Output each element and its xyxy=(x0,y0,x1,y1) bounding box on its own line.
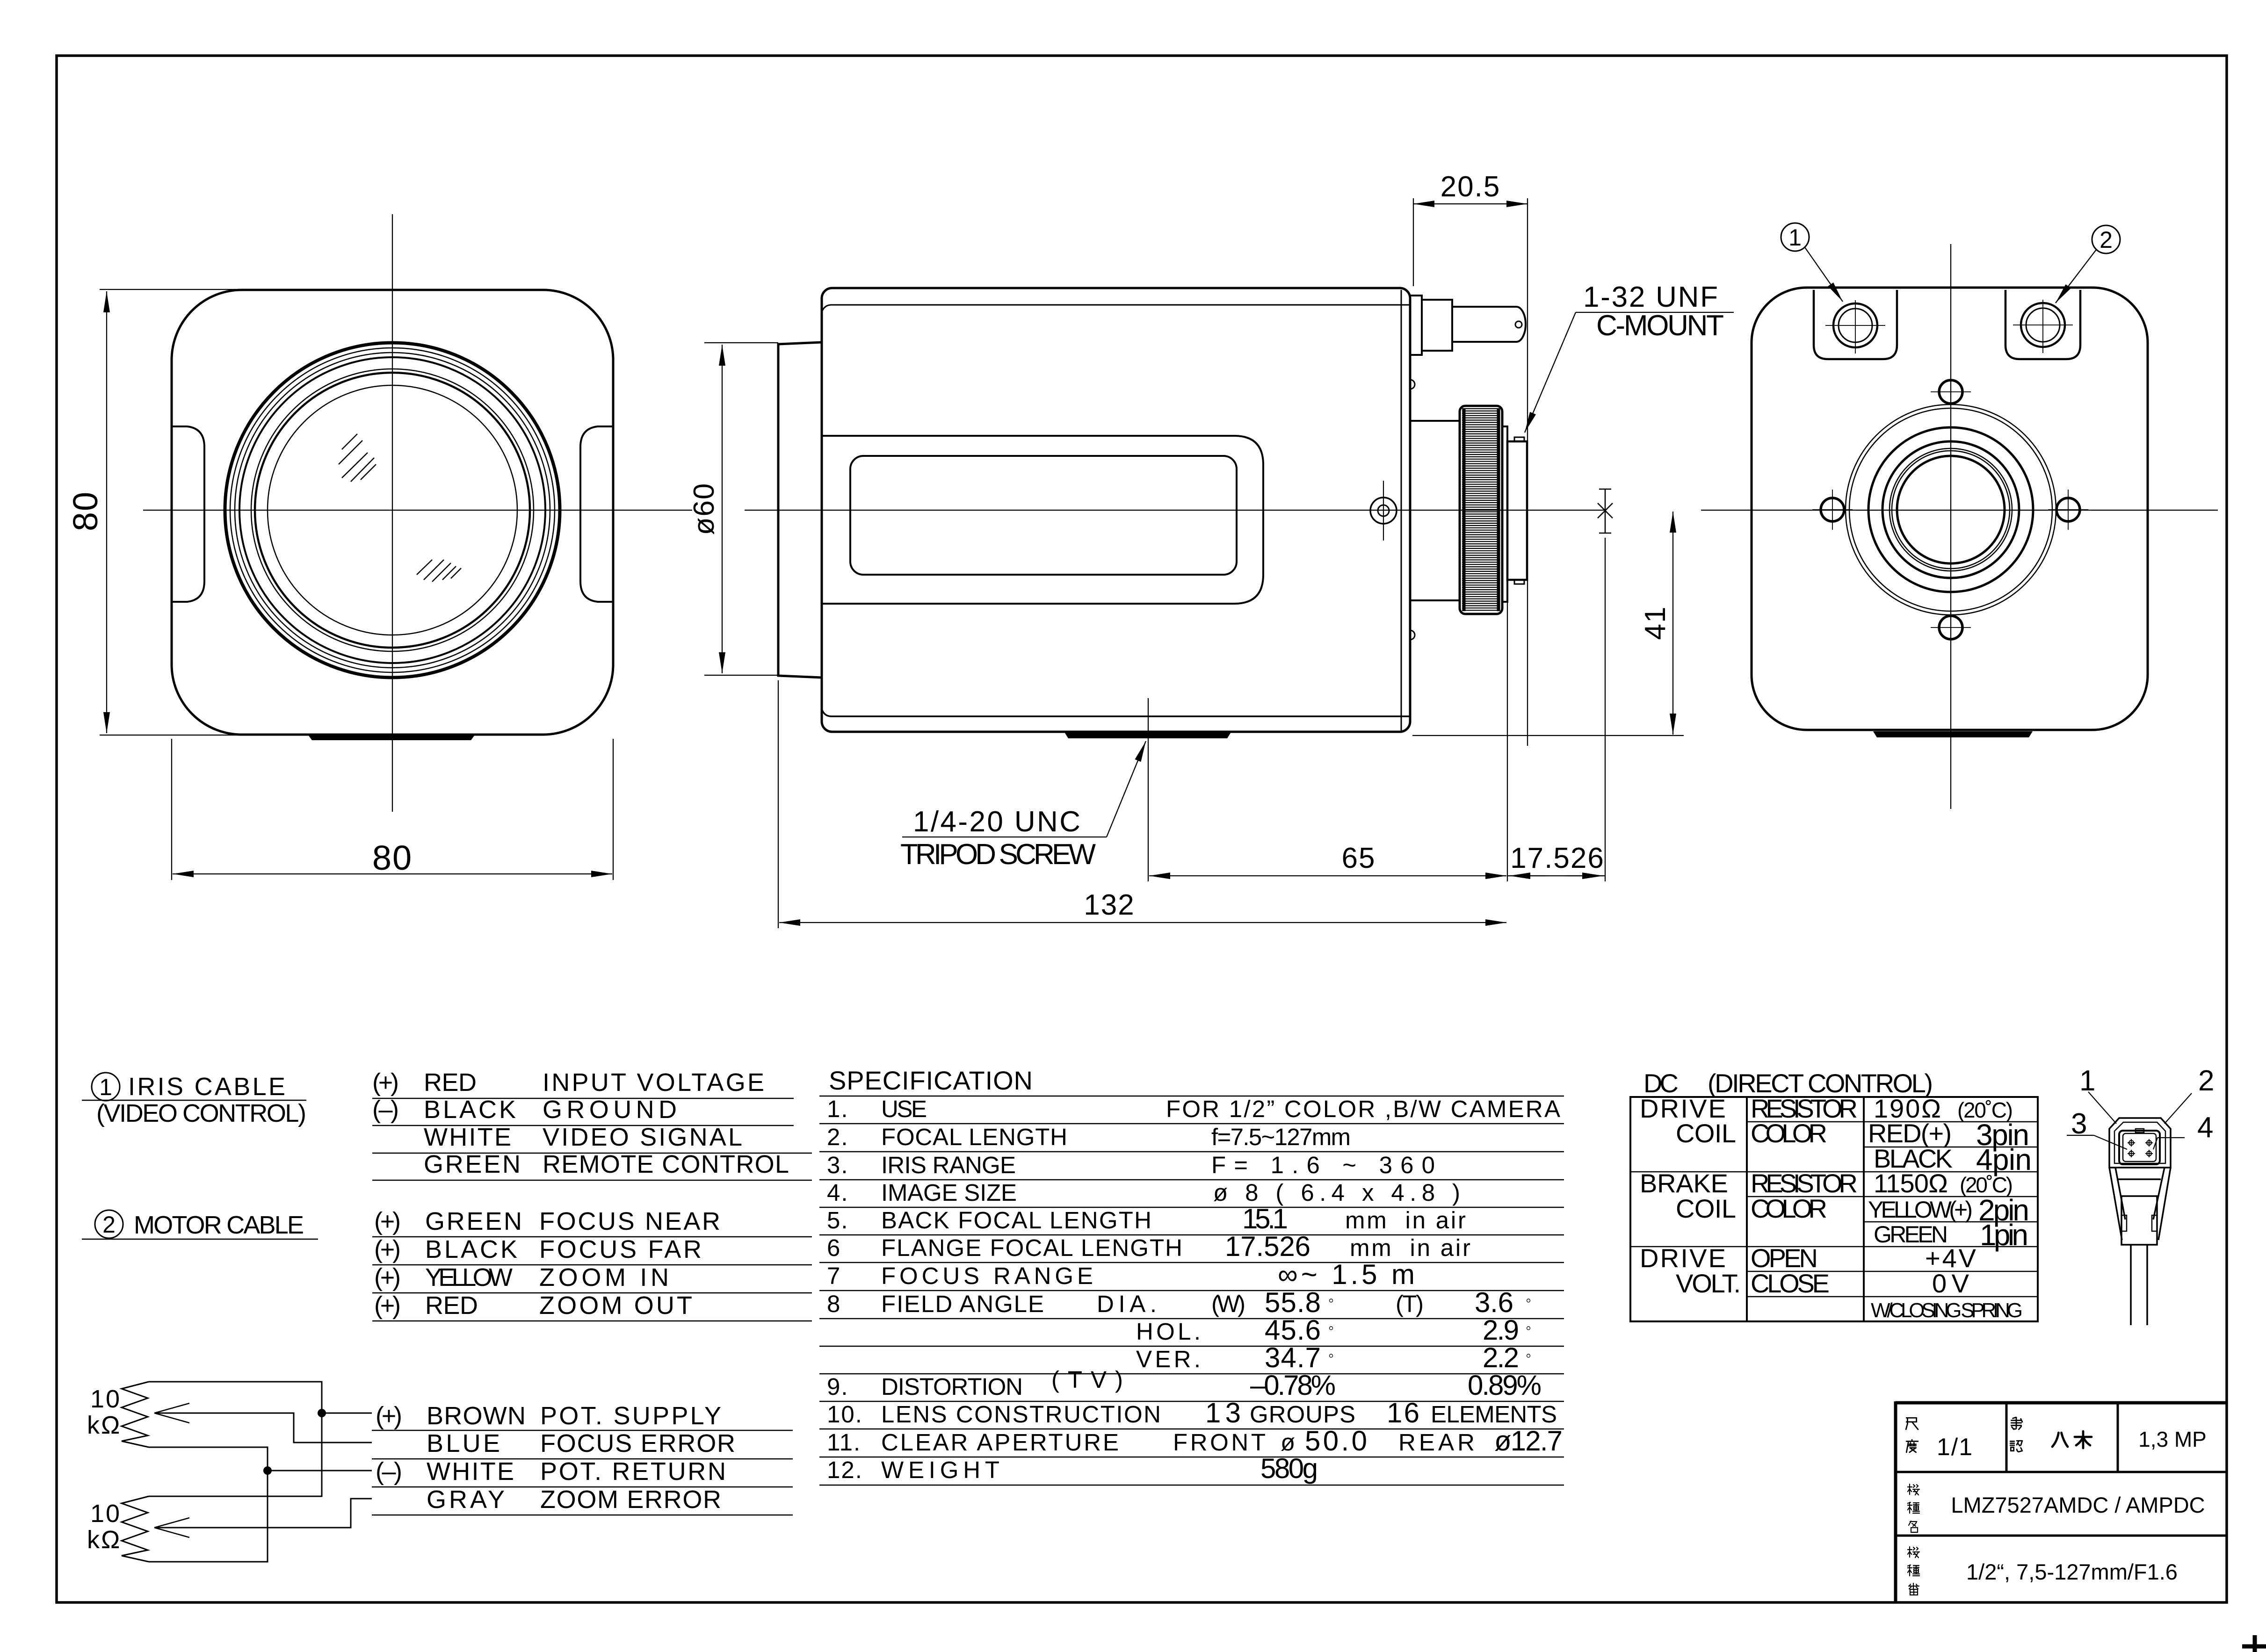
svg-text:6: 6 xyxy=(827,1234,841,1261)
svg-text:10: 10 xyxy=(90,1385,121,1413)
svg-text:LENS CONSTRUCTION: LENS CONSTRUCTION xyxy=(881,1401,1162,1428)
svg-text:VIDEO SIGNAL: VIDEO SIGNAL xyxy=(543,1123,744,1151)
svg-text:(–): (–) xyxy=(376,1457,404,1486)
svg-text:POT. RETURN: POT. RETURN xyxy=(540,1457,727,1486)
svg-text:f=7.5~127mm: f=7.5~127mm xyxy=(1211,1124,1352,1150)
svg-text:GREEN: GREEN xyxy=(424,1150,522,1178)
svg-text:50.0: 50.0 xyxy=(1305,1425,1368,1457)
svg-text:FRONT: FRONT xyxy=(1173,1429,1267,1456)
svg-text:MOTOR CABLE: MOTOR CABLE xyxy=(134,1211,305,1239)
svg-text:ZOOM IN: ZOOM IN xyxy=(539,1263,670,1291)
svg-text:FOCUS ERROR: FOCUS ERROR xyxy=(540,1429,737,1457)
svg-text:COLOR: COLOR xyxy=(1751,1118,1828,1148)
svg-text:2: 2 xyxy=(2099,227,2113,253)
svg-text:◦: ◦ xyxy=(1526,1347,1532,1364)
svg-text:55.8: 55.8 xyxy=(1265,1287,1322,1318)
svg-text:COLOR: COLOR xyxy=(1751,1194,1828,1223)
svg-text:DISTORTION: DISTORTION xyxy=(881,1373,1024,1400)
svg-text:ZOOM OUT: ZOOM OUT xyxy=(539,1291,694,1320)
svg-text:12.: 12. xyxy=(827,1457,863,1483)
svg-text:COIL: COIL xyxy=(1676,1118,1737,1148)
svg-text:10: 10 xyxy=(90,1500,121,1528)
svg-text:◦: ◦ xyxy=(1526,1291,1532,1309)
svg-text:580g: 580g xyxy=(1260,1453,1319,1484)
svg-text:(W): (W) xyxy=(1211,1291,1246,1317)
svg-text:1/2“, 7,5-127mm/F1.6: 1/2“, 7,5-127mm/F1.6 xyxy=(1966,1559,2178,1584)
svg-text:1-32 UNF: 1-32 UNF xyxy=(1583,281,1719,313)
svg-text:ø60: ø60 xyxy=(688,483,720,535)
svg-text:132: 132 xyxy=(1084,889,1135,921)
svg-text:YELLOW: YELLOW xyxy=(425,1263,514,1291)
svg-text:ZOOM ERROR: ZOOM ERROR xyxy=(540,1486,723,1514)
svg-text:LMZ7527AMDC / AMPDC: LMZ7527AMDC / AMPDC xyxy=(1951,1493,2205,1517)
svg-text:FOR 1/2” COLOR ,B/W CAMERA: FOR 1/2” COLOR ,B/W CAMERA xyxy=(1166,1096,1561,1122)
svg-text:11.: 11. xyxy=(827,1429,861,1456)
svg-text:(+): (+) xyxy=(374,1263,402,1291)
svg-text:C-MOUNT: C-MOUNT xyxy=(1596,310,1725,342)
svg-text:1.: 1. xyxy=(827,1096,849,1122)
svg-text:4: 4 xyxy=(2197,1111,2213,1144)
svg-text:15.1: 15.1 xyxy=(1242,1203,1289,1234)
svg-text:BROWN: BROWN xyxy=(427,1402,527,1430)
svg-text:RED: RED xyxy=(425,1291,479,1320)
svg-text:FIELD ANGLE: FIELD ANGLE xyxy=(881,1291,1045,1317)
svg-text:80: 80 xyxy=(372,838,413,877)
svg-text:TRIPOD SCREW: TRIPOD SCREW xyxy=(900,838,1097,871)
svg-text:ELEMENTS: ELEMENTS xyxy=(1431,1401,1558,1428)
svg-text:1/1: 1/1 xyxy=(1937,1434,1973,1461)
svg-text:∞~ 1.5 m: ∞~ 1.5 m xyxy=(1278,1259,1416,1290)
svg-text:–0.78%: –0.78% xyxy=(1250,1370,1337,1401)
svg-text:CLEAR APERTURE: CLEAR APERTURE xyxy=(881,1429,1120,1456)
svg-text:RED: RED xyxy=(424,1068,478,1097)
svg-text:W/CLOSING SPRING: W/CLOSING SPRING xyxy=(1871,1299,2023,1322)
svg-text:IMAGE SIZE: IMAGE SIZE xyxy=(881,1179,1018,1206)
svg-text:17.526: 17.526 xyxy=(1225,1231,1311,1262)
svg-text:◦: ◦ xyxy=(1328,1291,1335,1309)
svg-text:ø12.7: ø12.7 xyxy=(1494,1425,1564,1457)
svg-text:FLANGE FOCAL LENGTH: FLANGE FOCAL LENGTH xyxy=(881,1234,1183,1261)
svg-text:(T): (T) xyxy=(1396,1291,1425,1317)
svg-text:2: 2 xyxy=(2198,1065,2214,1097)
svg-text:9.: 9. xyxy=(827,1373,849,1400)
svg-text:(–): (–) xyxy=(372,1096,400,1124)
svg-text:◦: ◦ xyxy=(1526,1319,1532,1337)
svg-text:ø 8 ( 6.4 x 4.8 ): ø 8 ( 6.4 x 4.8 ) xyxy=(1213,1179,1461,1206)
svg-text:HOL.: HOL. xyxy=(1136,1318,1202,1345)
svg-text:◦: ◦ xyxy=(1328,1347,1335,1364)
svg-text:POT. SUPPLY: POT. SUPPLY xyxy=(540,1402,723,1430)
svg-text:FOCUS NEAR: FOCUS NEAR xyxy=(539,1207,722,1235)
svg-text:80: 80 xyxy=(66,491,105,531)
svg-text:GRAY: GRAY xyxy=(427,1486,506,1514)
svg-text:1pin: 1pin xyxy=(1980,1218,2029,1252)
svg-text:3.: 3. xyxy=(827,1152,849,1178)
svg-text:◦: ◦ xyxy=(1328,1319,1335,1337)
svg-text:0.89%: 0.89% xyxy=(1468,1370,1542,1401)
svg-text:(+): (+) xyxy=(376,1402,404,1430)
svg-text:8: 8 xyxy=(827,1291,841,1317)
svg-text:REMOTE CONTROL: REMOTE CONTROL xyxy=(543,1150,790,1178)
svg-text:1150Ω: 1150Ω xyxy=(1874,1169,1948,1198)
svg-text:ø: ø xyxy=(1281,1429,1296,1456)
svg-text:1: 1 xyxy=(1788,224,1802,251)
svg-text:IRIS CABLE: IRIS CABLE xyxy=(128,1073,287,1101)
svg-text:(+): (+) xyxy=(374,1235,402,1263)
svg-text:SPECIFICATION: SPECIFICATION xyxy=(829,1066,1034,1095)
svg-text:41: 41 xyxy=(1639,606,1672,640)
svg-text:10.: 10. xyxy=(827,1401,863,1428)
svg-text:1: 1 xyxy=(2079,1065,2095,1097)
svg-text:IRIS RANGE: IRIS RANGE xyxy=(881,1152,1017,1178)
svg-text:FOCUS FAR: FOCUS FAR xyxy=(539,1235,703,1263)
svg-text:YELLOW(+): YELLOW(+) xyxy=(1868,1197,1973,1223)
svg-text:CLOSE: CLOSE xyxy=(1751,1269,1830,1298)
svg-text:7: 7 xyxy=(827,1262,841,1289)
svg-text:45.6: 45.6 xyxy=(1265,1314,1322,1346)
svg-text:34.7: 34.7 xyxy=(1265,1342,1322,1373)
svg-text:BACK FOCAL LENGTH: BACK FOCAL LENGTH xyxy=(881,1207,1152,1234)
svg-text:mm in air: mm in air xyxy=(1345,1207,1467,1234)
svg-text:5.: 5. xyxy=(827,1207,849,1234)
svg-text:3.6: 3.6 xyxy=(1475,1287,1514,1318)
svg-text:4pin: 4pin xyxy=(1976,1143,2032,1176)
svg-text:GREEN: GREEN xyxy=(425,1207,523,1235)
svg-text:FOCAL LENGTH: FOCAL LENGTH xyxy=(881,1124,1068,1150)
svg-text:kΩ: kΩ xyxy=(87,1526,121,1554)
svg-text:(+): (+) xyxy=(374,1291,402,1320)
svg-text:USE: USE xyxy=(881,1096,928,1122)
svg-text:VER.: VER. xyxy=(1136,1346,1202,1372)
svg-text:1/4-20 UNC: 1/4-20 UNC xyxy=(913,806,1081,838)
svg-text:COIL: COIL xyxy=(1676,1194,1737,1223)
svg-text:17.526: 17.526 xyxy=(1510,842,1605,874)
svg-text:1,3 MP: 1,3 MP xyxy=(2138,1427,2207,1451)
svg-text:4.: 4. xyxy=(827,1179,849,1206)
svg-text:mm in air: mm in air xyxy=(1350,1234,1471,1261)
svg-text:16: 16 xyxy=(1387,1397,1420,1428)
svg-text:BLACK: BLACK xyxy=(425,1235,519,1263)
svg-text:WHITE: WHITE xyxy=(424,1123,513,1151)
svg-text:(VIDEO CONTROL): (VIDEO CONTROL) xyxy=(96,1099,308,1127)
svg-text:VOLT.: VOLT. xyxy=(1676,1269,1741,1298)
svg-text:2.2: 2.2 xyxy=(1483,1342,1520,1373)
svg-text:(+): (+) xyxy=(374,1207,402,1235)
svg-text:GROUPS: GROUPS xyxy=(1250,1401,1356,1428)
svg-text:2.: 2. xyxy=(827,1124,849,1150)
svg-text:2: 2 xyxy=(102,1212,116,1238)
svg-text:BLUE: BLUE xyxy=(427,1429,501,1457)
svg-text:(+): (+) xyxy=(372,1068,400,1097)
svg-text:2.9: 2.9 xyxy=(1483,1314,1520,1346)
svg-text:kΩ: kΩ xyxy=(87,1411,121,1439)
svg-text:65: 65 xyxy=(1342,842,1376,874)
svg-text:20.5: 20.5 xyxy=(1441,171,1501,203)
svg-text:BLACK: BLACK xyxy=(424,1096,517,1124)
svg-text:INPUT VOLTAGE: INPUT VOLTAGE xyxy=(543,1068,766,1097)
svg-text:1: 1 xyxy=(99,1074,112,1100)
svg-text:WHITE: WHITE xyxy=(427,1457,515,1486)
svg-text:FOCUS RANGE: FOCUS RANGE xyxy=(881,1262,1094,1289)
